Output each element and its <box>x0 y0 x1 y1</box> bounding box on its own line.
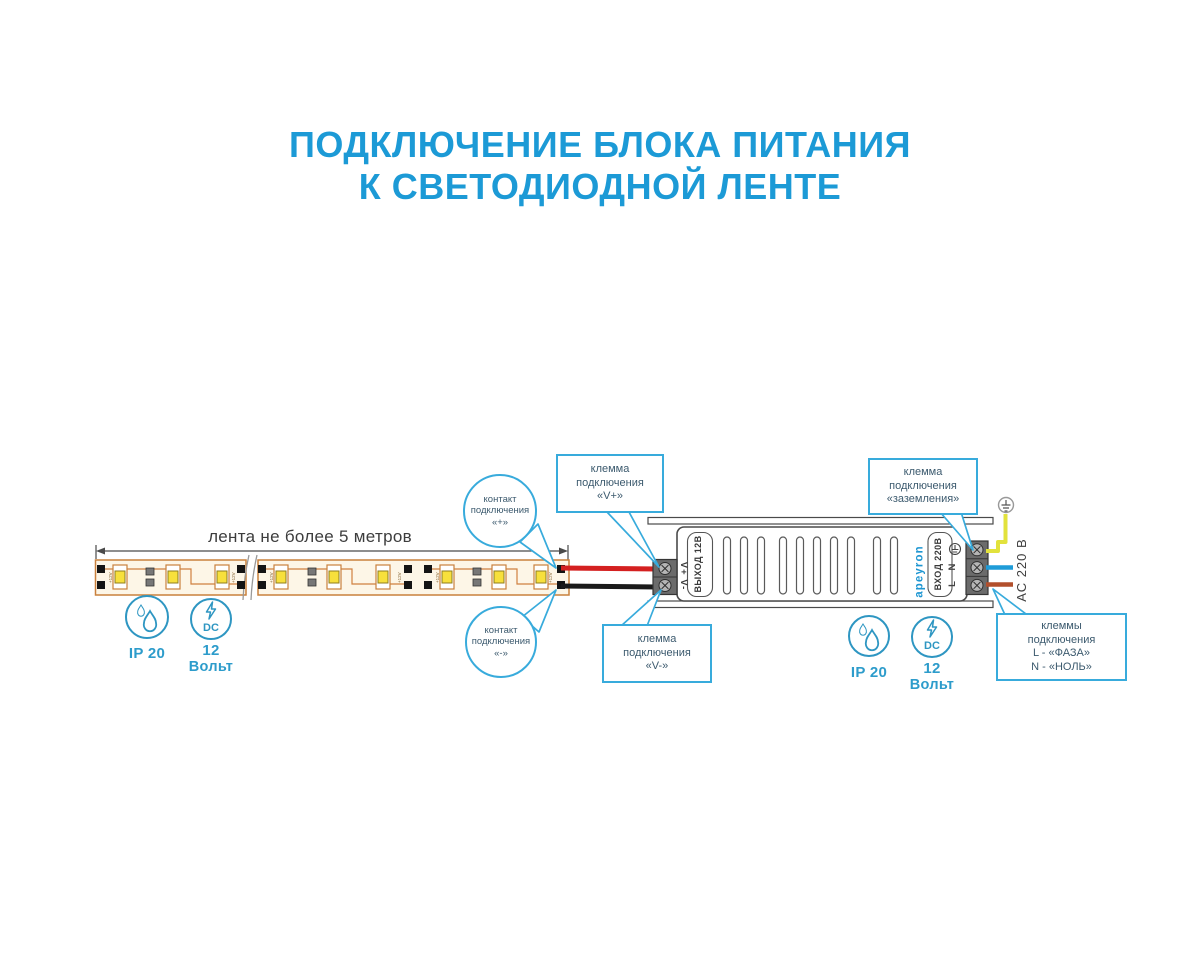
callout-line: «+» <box>465 517 535 529</box>
wire-red-vplus <box>561 568 657 569</box>
callout-line: «V-» <box>606 660 708 674</box>
pad-marking: +12V <box>397 572 402 583</box>
callout-terminal-vplus: клемма подключения «V+» <box>556 454 664 513</box>
psu-terminal-l-label: L <box>947 577 961 591</box>
psu-ip20-icon <box>849 616 889 656</box>
callout-contact-minus: контакт подключения «-» <box>465 606 537 678</box>
dc-icon-label: DC <box>203 622 219 634</box>
callout-line: подключения <box>560 477 660 491</box>
psu-top-flange <box>648 518 993 525</box>
callout-terminal-vminus: клемма подключения «V-» <box>602 624 712 683</box>
callout-line: L - «ФАЗА» <box>999 647 1124 661</box>
callout-contact-plus: контакт подключения «+» <box>463 474 537 548</box>
callout-line: подключения <box>467 636 535 648</box>
psu-input-terminals <box>966 541 988 595</box>
wiring-diagram-page: +12V +12V +12V +12V +12V +12V <box>0 0 1200 960</box>
psu-brand-label: apeyron <box>914 537 929 607</box>
led-strip: +12V +12V +12V +12V +12V +12V <box>96 555 570 600</box>
pad-marking: +12V <box>108 572 113 583</box>
strip-voltage-value-label: 12 <box>171 642 251 659</box>
psu-output-voltage-label: ВЫХОД 12В <box>693 529 707 599</box>
callout-line: клемма <box>560 463 660 477</box>
callout-line: подключения <box>871 480 975 494</box>
callout-line: «V+» <box>560 490 660 504</box>
dc-icon-label: DC <box>924 640 940 652</box>
callout-line: подключения <box>999 634 1124 648</box>
psu-dc12-icon: DC <box>912 617 952 657</box>
callout-line: клеммы <box>999 620 1124 634</box>
strip-ip20-icon <box>126 596 168 638</box>
callout-terminal-ground: клемма подключения «заземления» <box>868 458 978 515</box>
page-title-line2: К СВЕТОДИОДНОЙ ЛЕНТЕ <box>0 166 1200 208</box>
page-title: ПОДКЛЮЧЕНИЕ БЛОКА ПИТАНИЯ К СВЕТОДИОДНОЙ… <box>0 124 1200 208</box>
pad-marking: +12V <box>269 572 274 583</box>
psu-voltage-value-label: 12 <box>892 660 972 677</box>
psu-bottom-flange <box>648 601 993 608</box>
callout-line: «заземления» <box>871 493 975 507</box>
callout-line: контакт <box>465 494 535 506</box>
wire-black-vminus <box>561 586 657 587</box>
callout-terminal-mains: клеммы подключения L - «ФАЗА» N - «НОЛЬ» <box>996 613 1127 681</box>
pad-marking: +12V <box>548 572 553 583</box>
callout-line: N - «НОЛЬ» <box>999 661 1124 675</box>
pad-marking: +12V <box>231 572 236 583</box>
callout-line: подключения <box>606 647 708 661</box>
strip-voltage-unit-label: Вольт <box>171 659 251 675</box>
callout-line: контакт <box>467 625 535 637</box>
callout-line: «-» <box>467 648 535 660</box>
callout-line: клемма <box>606 633 708 647</box>
page-title-line1: ПОДКЛЮЧЕНИЕ БЛОКА ПИТАНИЯ <box>0 124 1200 166</box>
strip-dc12-icon: DC <box>191 599 231 639</box>
callout-line: клемма <box>871 466 975 480</box>
psu-voltage-unit-label: Вольт <box>892 677 972 693</box>
ac-voltage-label: АС 220 В <box>1014 520 1030 620</box>
strip-length-label: лента не более 5 метров <box>180 527 440 547</box>
earth-ground-icon <box>999 498 1014 513</box>
psu-input-voltage-label: ВХОД 220В <box>933 529 947 599</box>
strip-break-mark <box>251 555 257 600</box>
psu-terminal-n-label: N <box>947 560 961 574</box>
pad-marking: +12V <box>435 572 440 583</box>
callout-line: подключения <box>465 505 535 517</box>
psu-output-terminal-labels: V+ V- <box>675 554 689 598</box>
